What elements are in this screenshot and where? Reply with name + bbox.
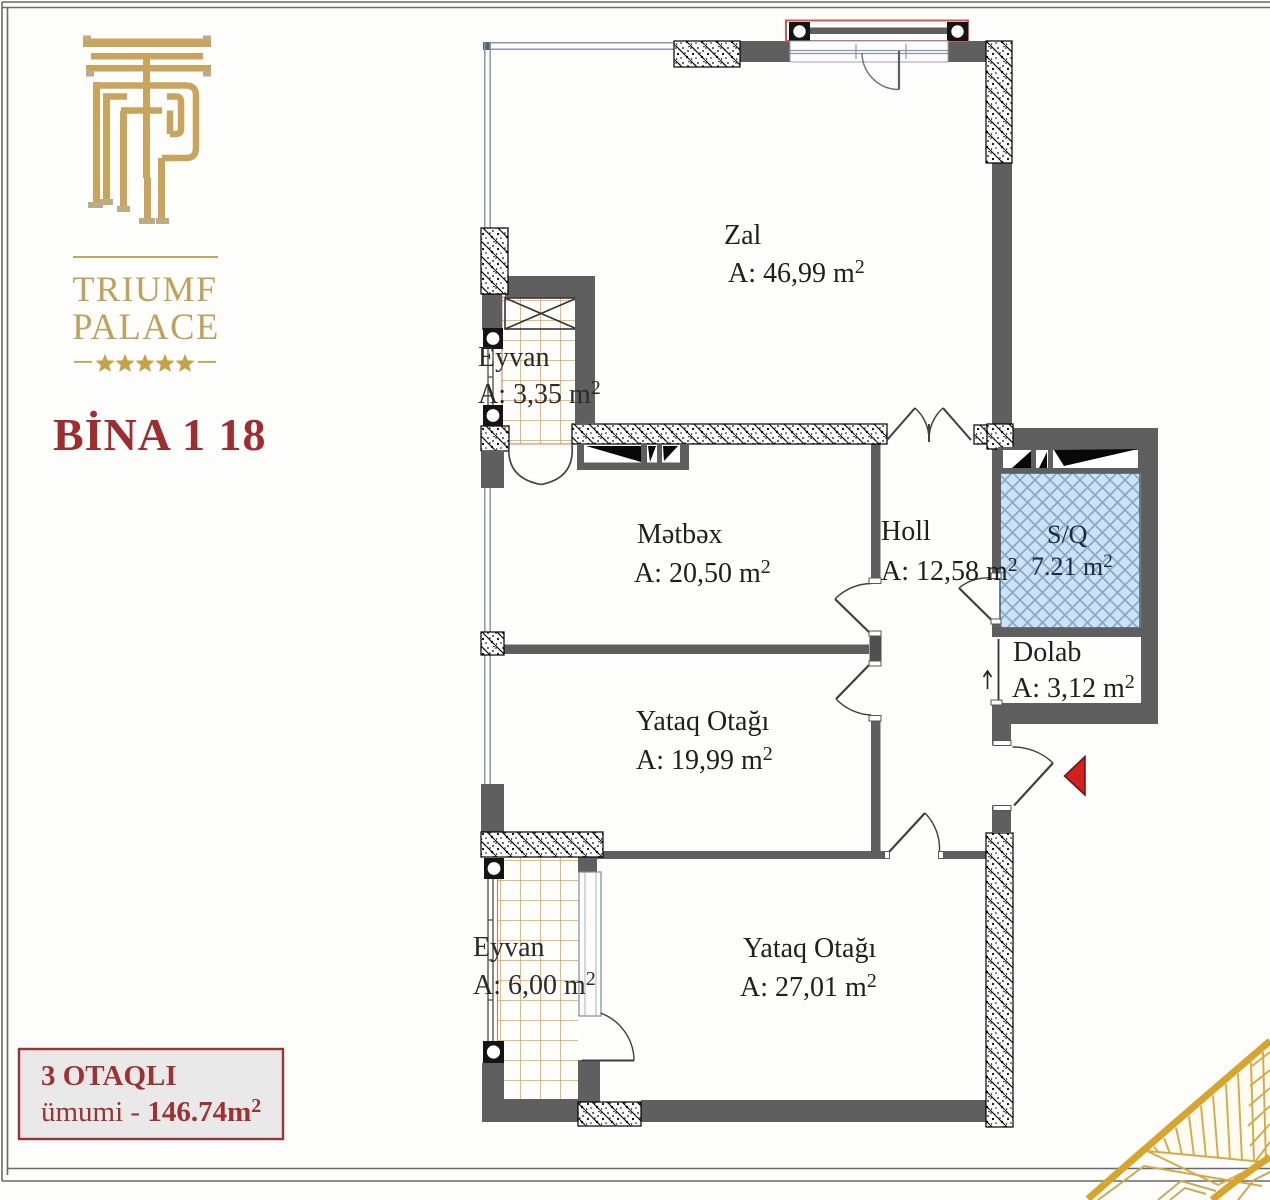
svg-text:Eyvan: Eyvan: [473, 932, 545, 963]
svg-text:Eyvan: Eyvan: [478, 342, 550, 373]
svg-text:A: 3,35 m2: A: 3,35 m2: [478, 377, 601, 410]
svg-text:BİNA 1 18: BİNA 1 18: [53, 409, 266, 460]
svg-text:7.21 m2: 7.21 m2: [1031, 551, 1113, 581]
svg-text:ümumi - 146.74m2: ümumi - 146.74m2: [41, 1095, 261, 1128]
svg-text:3 OTAQLI: 3 OTAQLI: [41, 1060, 177, 1092]
svg-text:Yataq Otağı: Yataq Otağı: [636, 706, 769, 737]
svg-text:A: 20,50 m2: A: 20,50 m2: [634, 556, 771, 589]
svg-text:A: 12,58 m2: A: 12,58 m2: [881, 554, 1018, 587]
svg-text:A: 19,99 m2: A: 19,99 m2: [636, 743, 773, 776]
svg-text:Mətbəx: Mətbəx: [637, 519, 723, 550]
svg-text:Holl: Holl: [881, 516, 931, 547]
svg-text:Dolab: Dolab: [1013, 637, 1081, 668]
svg-text:S/Q: S/Q: [1047, 520, 1088, 549]
svg-text:Zal: Zal: [724, 220, 762, 251]
svg-text:A: 27,01 m2: A: 27,01 m2: [740, 970, 877, 1003]
svg-text:A: 46,99 m2: A: 46,99 m2: [728, 256, 865, 289]
svg-text:TRIUMF: TRIUMF: [72, 269, 217, 309]
svg-text:PALACE: PALACE: [72, 306, 220, 347]
svg-text:Yataq Otağı: Yataq Otağı: [743, 933, 876, 964]
svg-text:A: 3,12 m2: A: 3,12 m2: [1012, 671, 1135, 704]
svg-text:A: 6,00 m2: A: 6,00 m2: [473, 968, 596, 1001]
